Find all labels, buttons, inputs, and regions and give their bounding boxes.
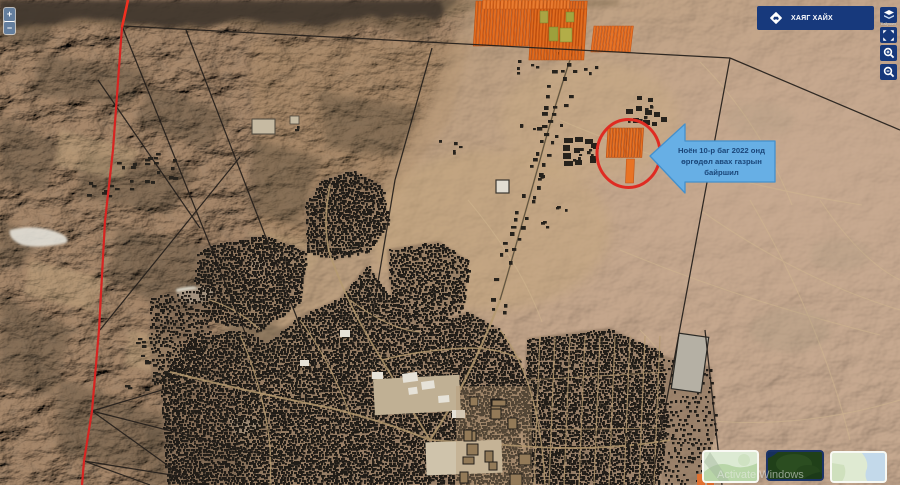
svg-text:өргөдөл авах газрын: өргөдөл авах газрын: [681, 157, 762, 166]
svg-text:Ноён 10-р баг 2022 онд: Ноён 10-р баг 2022 онд: [678, 146, 765, 155]
svg-text:байршил: байршил: [704, 168, 739, 177]
